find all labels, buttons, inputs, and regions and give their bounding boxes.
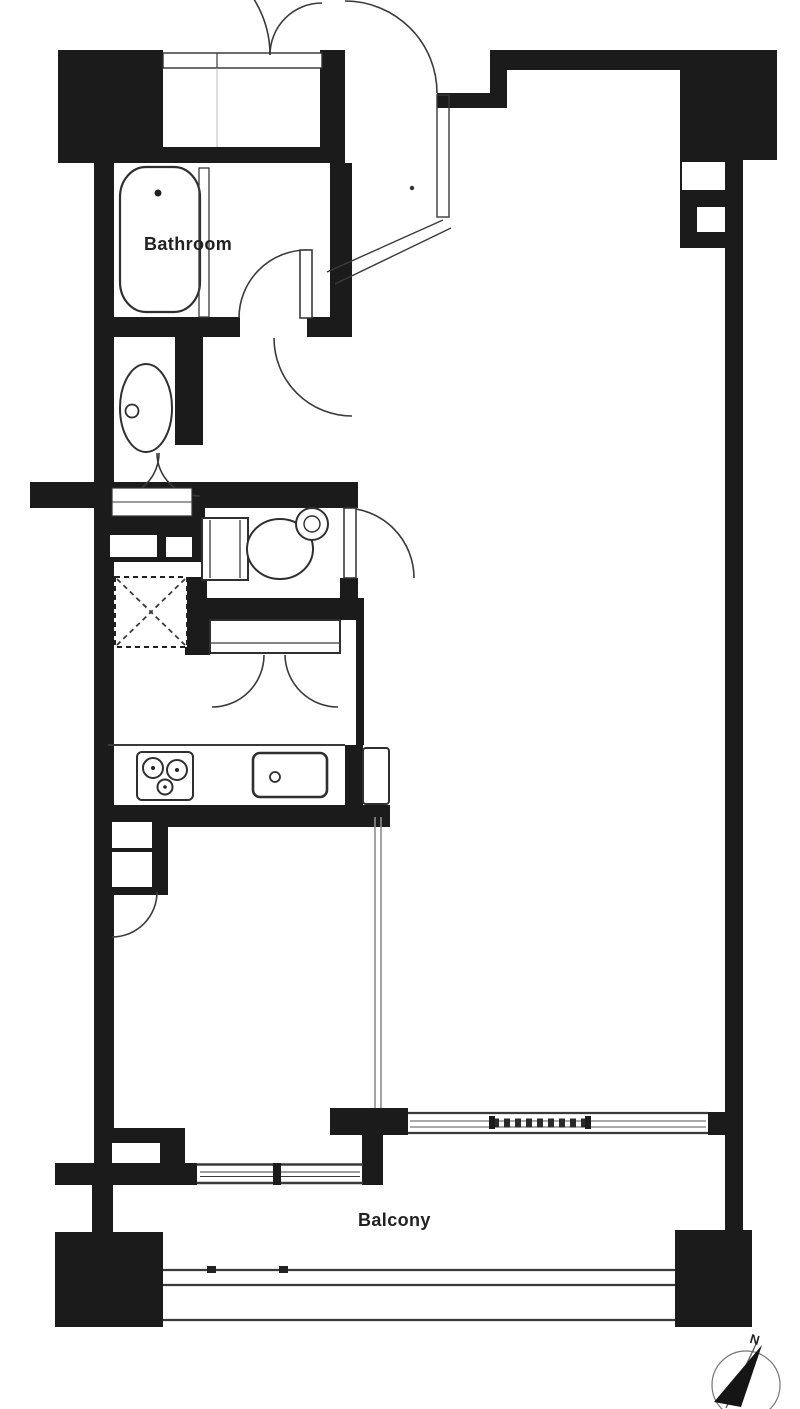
bathroom-door-arc [239,250,307,318]
closet-door-arc [165,0,270,55]
entry-door-arc [345,1,437,93]
bathroom-door-leaf [300,250,312,318]
storage-closet [210,620,340,707]
closet-door-arc [212,655,264,707]
floor-plan: Bathroom Balcony N [0,0,800,1409]
sink-drain [270,772,280,782]
floor-plan-drawing [0,0,800,1409]
balcony-sliding-door [408,1113,708,1133]
entry-step-line [335,228,451,284]
washing-machine-pan-icon [115,577,187,647]
bathroom-label: Bathroom [144,234,232,255]
toilet-door-leaf [344,508,356,578]
faucet-icon [126,405,139,418]
bathtub-drain [155,190,162,197]
closet-door-arc [285,655,338,707]
wall-niches [110,162,725,1163]
entry-side-wall [437,95,449,217]
bedroom-door-arc [112,892,157,937]
kitchen-sink-icon [253,753,327,797]
balcony-railing [163,1266,675,1320]
closet-door-arc [270,3,322,55]
toilet-room [202,508,414,580]
compass-icon [712,1342,780,1409]
balcony-label: Balcony [358,1210,431,1231]
counter-end-panel [363,748,389,804]
entry-closet-doors [163,0,322,147]
toilet-tank [202,518,248,580]
bedroom-window [197,1163,363,1185]
hall-door-arc [274,338,352,416]
